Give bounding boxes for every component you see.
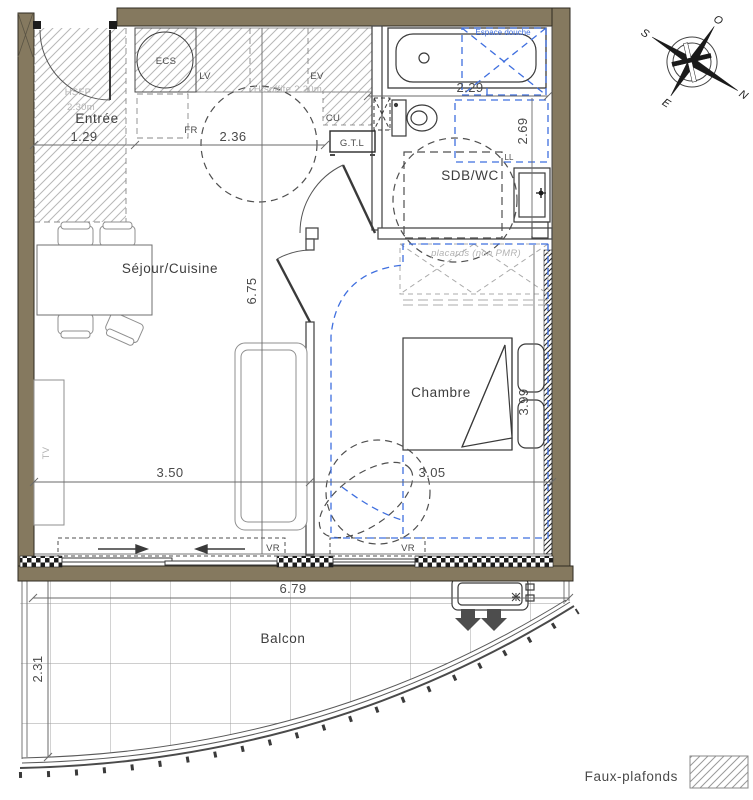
turning-circle-kitchen	[201, 86, 317, 202]
dim-sdb-w: 2.29	[457, 80, 484, 95]
ecs-label: ECS	[156, 56, 176, 67]
vr-label-sejour: VR	[266, 543, 280, 554]
compass-south: S	[639, 27, 652, 41]
ev-label: EV	[310, 71, 324, 82]
soffite-label: H.soffite 2.20m	[254, 84, 322, 95]
cu-label: CU	[326, 113, 340, 124]
hsfp-label: HSFP	[65, 87, 92, 98]
dim-balcon-w: 6.79	[280, 581, 307, 596]
placards-label: placards (non PMR)	[430, 248, 521, 259]
room-label-sejour: Séjour/Cuisine	[122, 261, 218, 276]
compass-west: O	[711, 13, 725, 28]
balcony	[19, 571, 578, 775]
wall-bottom	[18, 566, 573, 581]
ac-unit	[452, 578, 534, 610]
dim-cuisine-w: 2.36	[220, 129, 247, 144]
floor-plan-page: HSFP 2.30m Entrée 1.29 2.36 ECS LV EV FR…	[0, 0, 753, 800]
wall-top	[117, 8, 570, 26]
turning-circle-chambre	[326, 440, 430, 544]
dim-chambre-h: 3.99	[516, 389, 531, 416]
wall-right	[552, 8, 570, 568]
pillow	[518, 344, 544, 392]
sliding-bay-sejour	[62, 558, 277, 565]
dim-sejour-h: 6.75	[244, 278, 259, 305]
sofa	[235, 343, 307, 530]
fr-label: FR	[184, 125, 197, 136]
sliding-direction-arrow-icons	[98, 545, 245, 553]
chambre-door	[277, 250, 310, 322]
sdb-door	[300, 165, 375, 233]
maneuver-ellipse	[307, 448, 425, 553]
bathtub	[388, 28, 546, 88]
wall-mid-stub	[306, 228, 318, 239]
room-label-balcon: Balcon	[261, 631, 306, 646]
window-chambre	[333, 559, 415, 565]
floor-plan-svg: HSFP 2.30m Entrée 1.29 2.36 ECS LV EV FR…	[0, 0, 753, 800]
room-label-entree: Entrée	[75, 111, 118, 126]
sdb-clearance-box	[404, 152, 502, 238]
vr-label-chambre: VR	[401, 543, 415, 554]
legend-label: Faux-plafonds	[585, 769, 678, 784]
dining-table	[37, 245, 152, 315]
ll-label: LL	[505, 153, 514, 162]
dim-sejour-w: 3.50	[157, 465, 184, 480]
room-label-chambre: Chambre	[411, 385, 471, 400]
compass-east: E	[660, 97, 673, 111]
legend-faux-plafonds: Faux-plafonds	[585, 756, 748, 788]
dim-sdb-h: 2.69	[515, 118, 530, 145]
lv-label: LV	[199, 71, 211, 82]
wall-chambre-top	[306, 239, 314, 250]
espace-douche-label: Espace douche	[475, 28, 531, 37]
vr-box-sejour	[58, 538, 285, 556]
dim-chambre-w: 3.05	[419, 465, 446, 480]
gtl-label: G.T.L	[340, 138, 364, 149]
compass-rose: O E S N	[613, 0, 753, 143]
room-label-sdb: SDB/WC	[441, 168, 499, 183]
dim-balcon-d: 2.31	[30, 656, 45, 683]
toilet	[392, 100, 437, 136]
bottom-wall-glazing	[20, 556, 553, 567]
legend-swatch	[690, 756, 748, 788]
tv-label: TV	[41, 446, 52, 459]
dim-entree-w: 1.29	[71, 129, 98, 144]
compass-north: N	[737, 88, 750, 102]
